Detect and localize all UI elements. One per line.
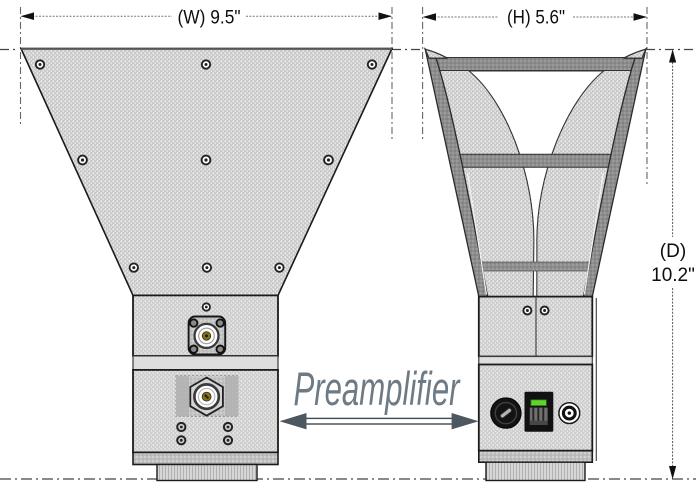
svg-text:(W) 9.5": (W) 9.5" xyxy=(178,7,241,28)
svg-text:10.2": 10.2" xyxy=(651,265,695,286)
svg-text:(D): (D) xyxy=(660,241,686,262)
svg-text:(H) 5.6": (H) 5.6" xyxy=(507,8,565,29)
svg-text:Preamplifier: Preamplifier xyxy=(294,362,462,415)
